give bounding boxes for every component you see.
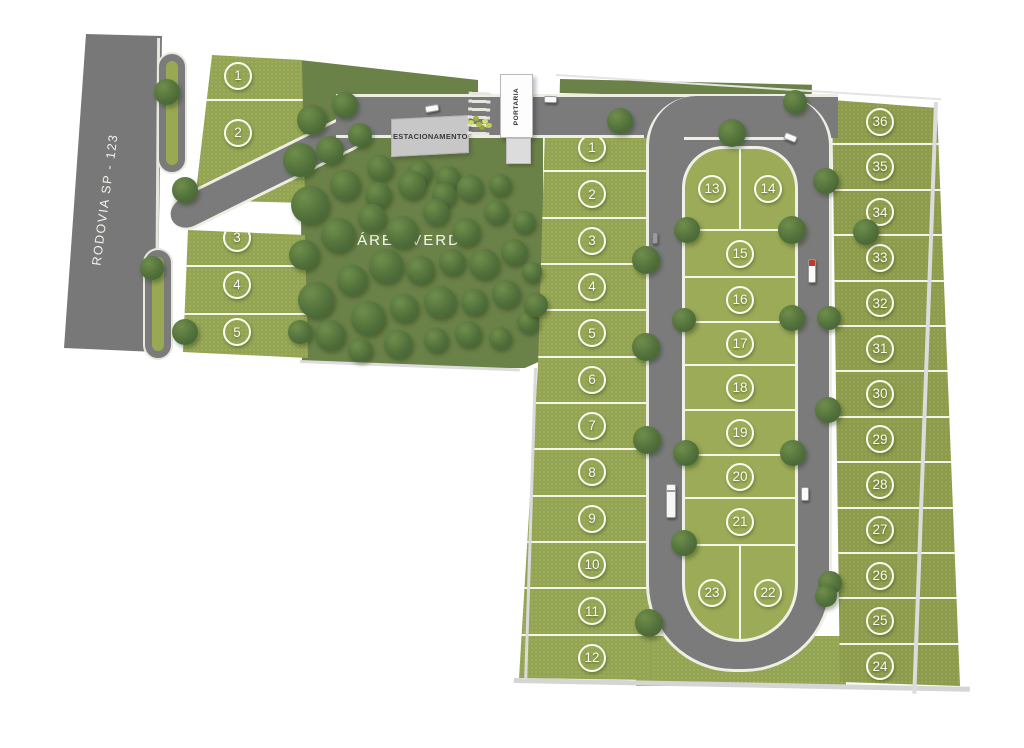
lot-block-island: 13 14 15 16 17 18 19 20 21 23 22	[682, 146, 798, 642]
lot: 33	[832, 236, 962, 281]
lot-number: 26	[866, 562, 894, 590]
lot-number: 24	[866, 652, 894, 680]
lot-number: 27	[866, 516, 894, 544]
lot: 32	[832, 282, 962, 327]
lot: 35	[832, 145, 962, 190]
main-street	[336, 94, 646, 138]
lot: 6	[518, 358, 652, 404]
lot: 23	[685, 546, 739, 639]
lot: 12	[518, 636, 652, 680]
lot: 20	[685, 456, 795, 499]
lot: 9	[518, 497, 652, 543]
lot-number: 10	[578, 551, 606, 579]
lot-number: 4	[578, 273, 606, 301]
lot: 8	[518, 450, 652, 496]
lot-number: 30	[866, 380, 894, 408]
truck-icon	[666, 484, 676, 518]
lot: 1	[194, 52, 306, 101]
lot-number: 17	[726, 330, 754, 358]
lot: 22	[739, 546, 795, 639]
lot-number: 3	[578, 227, 606, 255]
gatehouse-building: PORTARIA	[500, 74, 533, 138]
lot-number: 5	[578, 319, 606, 347]
lot-number: 5	[223, 318, 251, 346]
lot-number: 15	[726, 240, 754, 268]
turnaround-loop	[157, 52, 187, 174]
lot-number: 16	[726, 286, 754, 314]
flowerbed	[468, 120, 474, 125]
lot-number: 9	[578, 505, 606, 533]
curb	[684, 137, 796, 140]
lot: 36	[832, 100, 962, 145]
lot: 31	[832, 327, 962, 372]
lot-number: 19	[726, 419, 754, 447]
parking-label: ESTACIONAMENTO	[393, 132, 468, 141]
lot: 7	[518, 404, 652, 450]
lot-block-right: 36 35 34 33 32 31 30 29 28 27 26 25 24	[832, 100, 962, 688]
lot: 26	[832, 554, 962, 599]
lot-number: 32	[866, 289, 894, 317]
lot: 24	[832, 645, 962, 688]
lot-number: 29	[866, 425, 894, 453]
lot: 10	[518, 543, 652, 589]
lot: 25	[832, 599, 962, 644]
lot: 5	[180, 315, 310, 360]
green-area-label: ÁREA VERDE	[345, 232, 485, 249]
lot-number: 8	[578, 458, 606, 486]
lot-number: 12	[578, 644, 606, 672]
gatehouse-annex	[506, 138, 531, 164]
site-plan: 1 2 3 4 5 1 2 3 4 5 6 7 8 9 10 11 12 13 …	[0, 0, 1024, 748]
lot-number: 3	[223, 224, 251, 252]
lot: 13	[685, 149, 739, 229]
lot-number: 23	[698, 579, 726, 607]
lot: 3	[180, 220, 310, 267]
lot-number: 13	[698, 175, 726, 203]
lot-number: 7	[578, 412, 606, 440]
lot: 29	[832, 418, 962, 463]
car-icon	[801, 487, 809, 501]
parking-area: ESTACIONAMENTO	[391, 115, 469, 157]
lot: 28	[832, 463, 962, 508]
car-icon	[544, 96, 557, 103]
lot: 21	[685, 499, 795, 546]
turnaround-loop	[143, 248, 173, 360]
lot: 19	[685, 411, 795, 456]
lot: 34	[832, 191, 962, 236]
lot-number: 25	[866, 607, 894, 635]
lot-number: 35	[866, 153, 894, 181]
lot: 27	[832, 509, 962, 554]
lot-number: 2	[224, 119, 252, 147]
lot-number: 20	[726, 463, 754, 491]
lot-number: 2	[578, 180, 606, 208]
lot-number: 14	[754, 175, 782, 203]
lot-number: 34	[866, 198, 894, 226]
lot: 30	[832, 372, 962, 417]
lot-number: 18	[726, 374, 754, 402]
crosswalk	[467, 92, 491, 137]
lot: 11	[518, 589, 652, 635]
lot: 15	[685, 231, 795, 278]
lot-pair: 23 22	[685, 546, 795, 639]
lot-number: 21	[726, 508, 754, 536]
lot-number: 36	[866, 108, 894, 136]
lot-number: 11	[578, 597, 606, 625]
lot-number: 28	[866, 471, 894, 499]
lot-number: 6	[578, 366, 606, 394]
lot-number: 31	[866, 335, 894, 363]
lot: 16	[685, 278, 795, 323]
lot-number: 22	[754, 579, 782, 607]
lot: 17	[685, 323, 795, 366]
lot: 4	[180, 267, 310, 314]
lot-block-left-lower: 3 4 5	[180, 220, 310, 360]
lot-number: 1	[224, 62, 252, 90]
lot-number: 1	[578, 134, 606, 162]
lot-pair: 13 14	[685, 149, 795, 231]
lot-number: 33	[866, 244, 894, 272]
lot-number: 4	[223, 271, 251, 299]
lot: 18	[685, 366, 795, 411]
lot: 14	[739, 149, 795, 229]
car-icon	[652, 232, 658, 244]
gatehouse-label: PORTARIA	[513, 87, 520, 124]
truck-icon	[808, 259, 816, 283]
